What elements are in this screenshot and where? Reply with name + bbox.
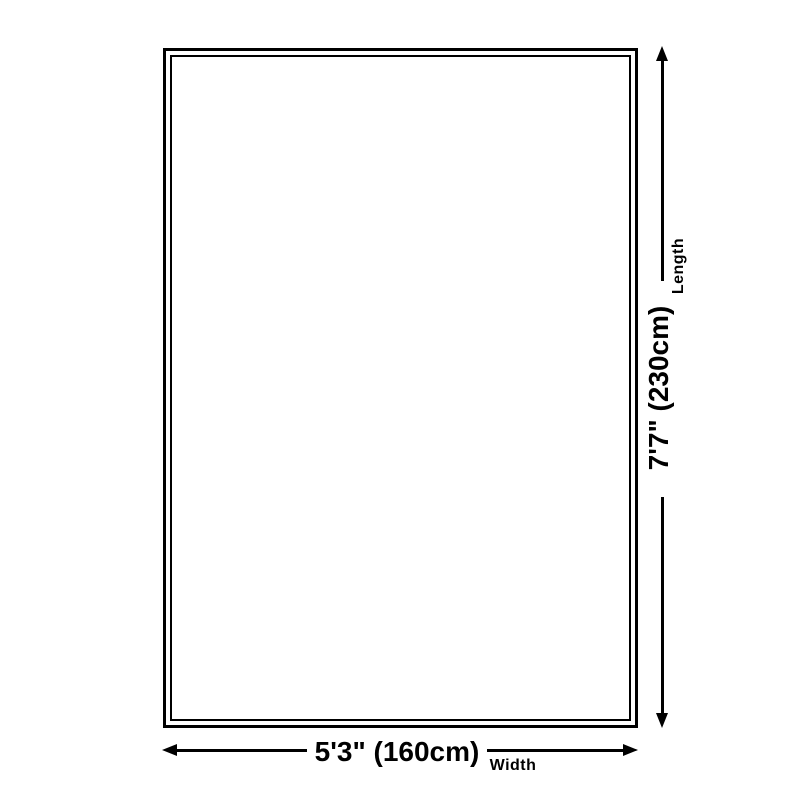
arrow-down-icon — [656, 713, 668, 728]
rug-outline — [163, 48, 638, 728]
width-arrow-line-right — [487, 749, 626, 752]
width-value-label: 5'3" (160cm) — [315, 738, 480, 766]
rug-inner-border — [170, 55, 631, 721]
length-value-label: 7'7" (230cm) — [645, 306, 673, 471]
width-axis-label: Width — [490, 758, 537, 774]
arrow-right-icon — [623, 744, 638, 756]
length-arrow-line-bottom — [661, 497, 664, 717]
length-arrow-line-top — [661, 58, 664, 281]
rug-dimension-diagram: Length 7'7" (230cm) 5'3" (160cm) Width — [0, 0, 800, 800]
length-axis-label: Length — [671, 238, 687, 294]
width-arrow-line-left — [174, 749, 307, 752]
